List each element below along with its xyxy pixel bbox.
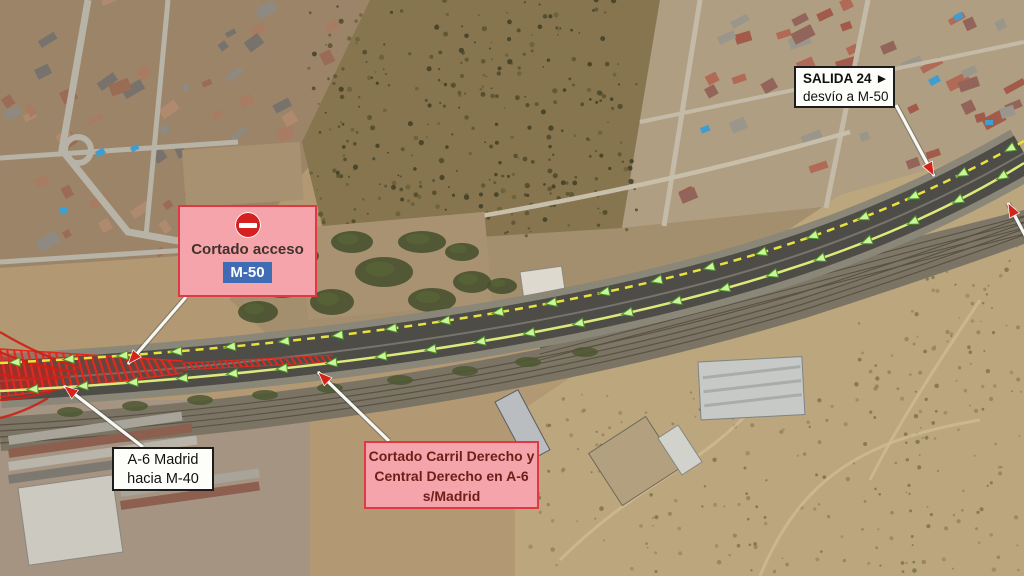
exit-24-line2: desvío a M-50 bbox=[803, 88, 889, 106]
no-entry-icon bbox=[235, 212, 261, 238]
lane-closure-line1: Cortado Carril Derecho y bbox=[366, 446, 537, 466]
a6-direction-callout: A-6 Madrid hacia M-40 bbox=[112, 447, 214, 491]
exit-24-line1: SALIDA 24 ► bbox=[803, 70, 889, 88]
closed-access-label: Cortado acceso bbox=[180, 241, 315, 258]
m50-road-badge: M-50 bbox=[223, 262, 271, 283]
lane-closure-line3: s/Madrid bbox=[366, 486, 537, 506]
a6-line1: A-6 Madrid bbox=[114, 451, 212, 470]
lane-closure-callout: Cortado Carril Derecho y Central Derecho… bbox=[364, 441, 539, 509]
exit-24-callout: SALIDA 24 ► desvío a M-50 bbox=[794, 66, 895, 108]
traffic-closure-map: Cortado acceso M-50 SALIDA 24 ► desvío a… bbox=[0, 0, 1024, 576]
lane-closure-line2: Central Derecho en A-6 bbox=[366, 466, 537, 486]
a6-line2: hacia M-40 bbox=[114, 470, 212, 489]
closed-access-callout: Cortado acceso M-50 bbox=[178, 205, 317, 297]
